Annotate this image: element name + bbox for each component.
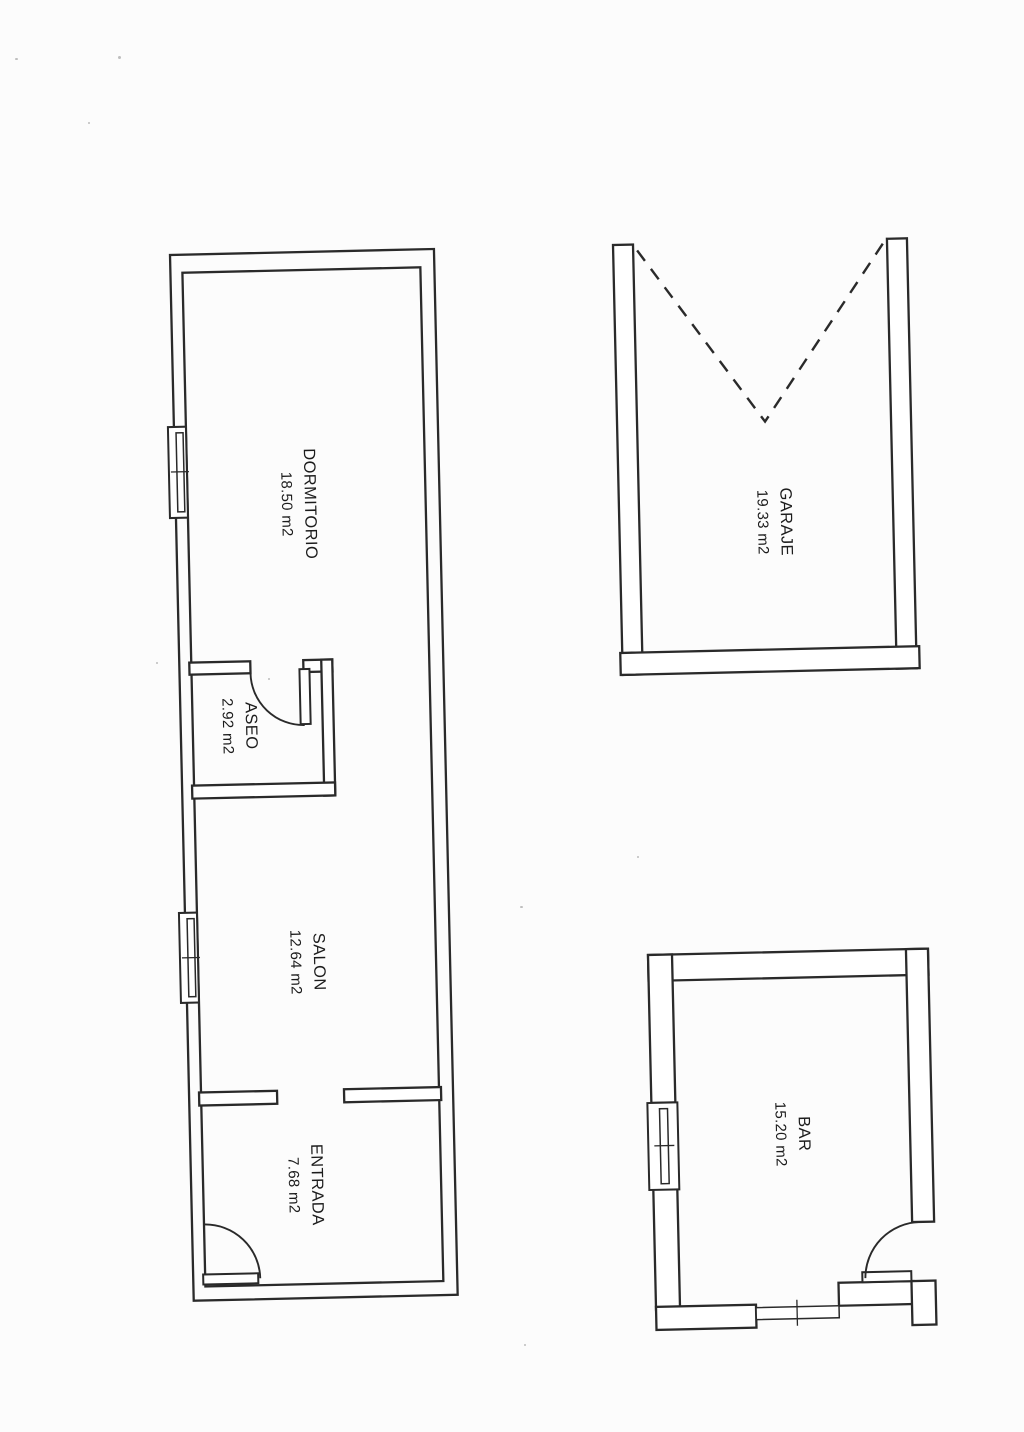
scan-speck [520, 906, 523, 908]
scan-speck [88, 122, 90, 124]
room-name: SALON [306, 929, 331, 994]
floorplan-page: DORMITORIO 18.50 m2 ASEO 2.92 m2 SALON 1… [0, 0, 1024, 1432]
aseo-door-leaf [299, 669, 310, 724]
room-label-bar: BAR 15.20 m2 [767, 1101, 816, 1167]
room-name: BAR [791, 1101, 816, 1166]
aseo-top-wall [189, 661, 250, 674]
aseo-bottom-wall [192, 782, 335, 798]
bar-door-leaf [862, 1271, 911, 1282]
room-area: 12.64 m2 [282, 930, 307, 995]
entrada-door-leaf [203, 1273, 258, 1284]
room-area: 2.92 m2 [214, 698, 239, 755]
room-area: 7.68 m2 [280, 1144, 306, 1226]
room-label-garaje: GARAJE 19.33 m2 [749, 487, 799, 556]
window-mid-tick [797, 1300, 798, 1326]
bar-left-window [647, 1102, 679, 1190]
garage-bottom-wall [620, 646, 919, 675]
room-label-aseo: ASEO 2.92 m2 [214, 697, 263, 754]
bar-bottom-window [756, 1299, 840, 1327]
building-garage [611, 238, 920, 675]
garage-right-wall [887, 238, 917, 668]
bar-top-wall [648, 949, 929, 981]
room-name: GARAJE [773, 487, 799, 556]
bar-right-wall [906, 949, 934, 1222]
room-name: ASEO [238, 697, 263, 754]
room-label-salon: SALON 12.64 m2 [282, 929, 331, 995]
floorplan-drawing [0, 0, 1024, 1432]
garage-door-swing-dashed [637, 242, 888, 425]
scan-speck [15, 58, 18, 60]
room-area: 19.33 m2 [749, 488, 775, 557]
room-label-entrada: ENTRADA 7.68 m2 [280, 1144, 330, 1227]
house-inner-wall [182, 267, 443, 1286]
entrada-partition-left [199, 1091, 277, 1106]
bar-left-wall-lower [653, 1187, 680, 1310]
scan-speck [637, 856, 639, 858]
scan-speck [268, 678, 270, 680]
bar-bottom-right-corner [911, 1281, 936, 1326]
scan-speck [524, 1344, 526, 1346]
entrada-partition-right [344, 1087, 441, 1102]
salon-window [179, 913, 201, 1003]
bar-door-arc [864, 1222, 921, 1278]
bar-left-wall-upper [648, 954, 675, 1103]
garage-left-wall [613, 245, 643, 675]
scan-speck [156, 662, 158, 664]
room-area: 15.20 m2 [767, 1102, 792, 1167]
entrada-door-arc [204, 1223, 260, 1279]
scan-speck [118, 56, 121, 59]
room-label-dormitorio: DORMITORIO 18.50 m2 [273, 448, 324, 560]
dormitorio-window [168, 427, 190, 518]
room-name: DORMITORIO [297, 448, 324, 559]
room-name: ENTRADA [304, 1144, 330, 1226]
room-area: 18.50 m2 [273, 449, 300, 560]
bar-bottom-wall-left [656, 1305, 756, 1330]
bar-bottom-wall-step [838, 1281, 914, 1306]
aseo-right-wall [321, 659, 335, 795]
